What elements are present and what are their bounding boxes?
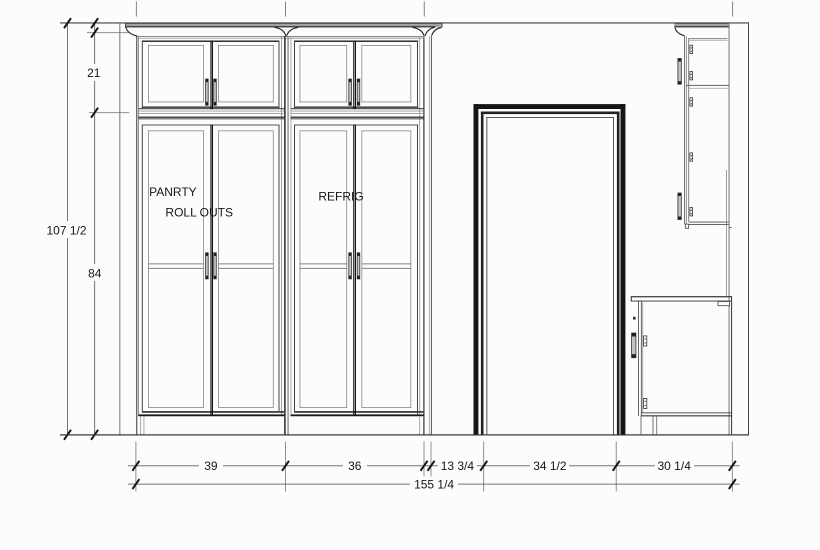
- svg-text:13 3/4: 13 3/4: [441, 459, 475, 473]
- svg-text:155 1/4: 155 1/4: [414, 477, 454, 491]
- svg-text:21: 21: [87, 66, 101, 80]
- svg-text:107 1/2: 107 1/2: [46, 224, 86, 238]
- svg-text:REFRIG: REFRIG: [318, 189, 363, 203]
- svg-text:39: 39: [204, 459, 218, 473]
- svg-text:84: 84: [88, 266, 102, 280]
- svg-text:ROLL OUTS: ROLL OUTS: [165, 206, 233, 220]
- svg-text:36: 36: [348, 459, 362, 473]
- svg-text:34 1/2: 34 1/2: [533, 459, 567, 473]
- svg-text:30 1/4: 30 1/4: [658, 459, 692, 473]
- svg-text:PANRTY: PANRTY: [149, 185, 197, 199]
